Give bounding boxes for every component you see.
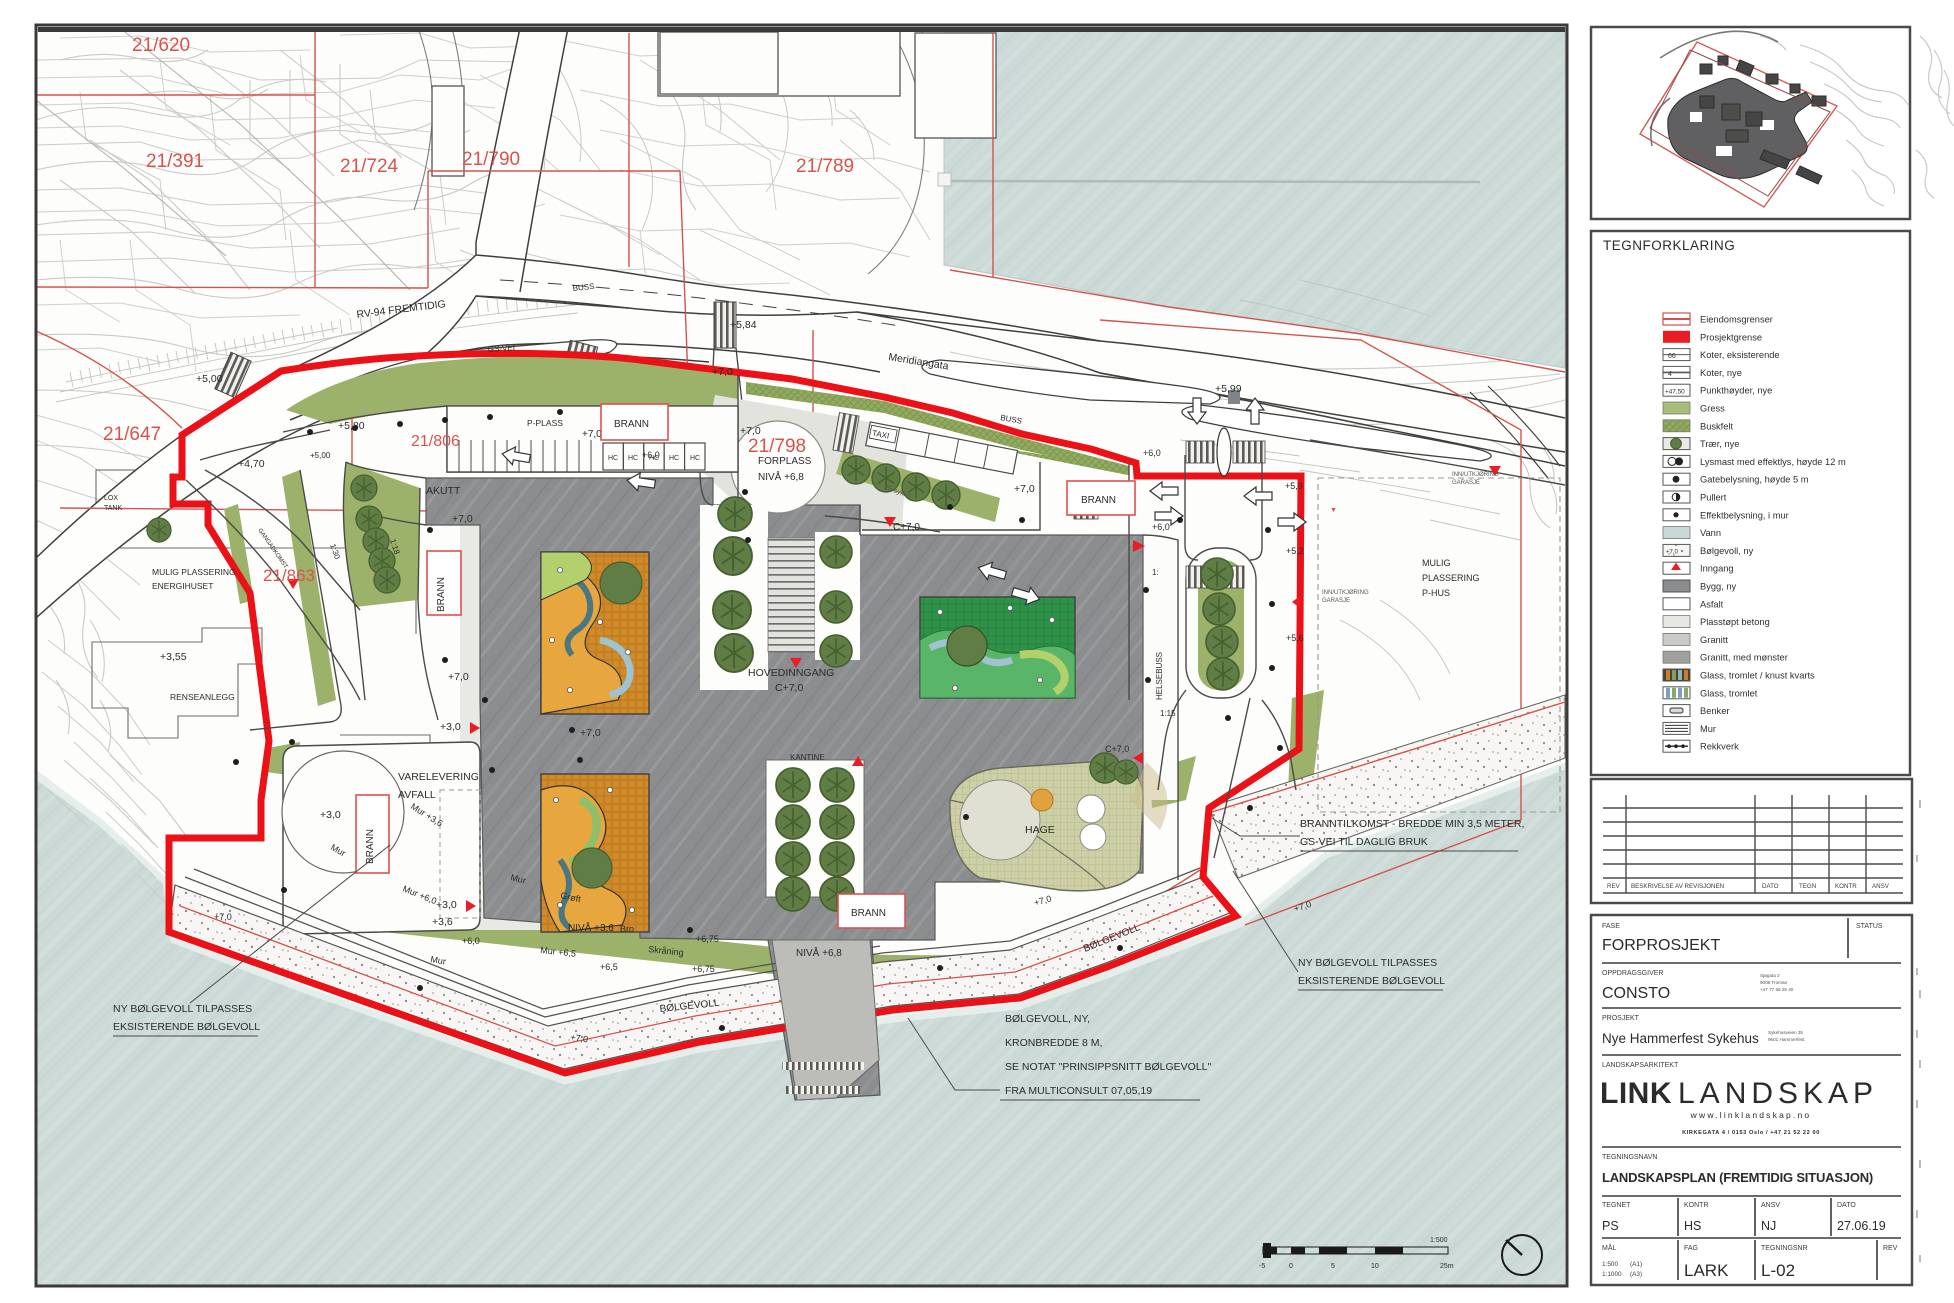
svg-text:TEGNINGSNR: TEGNINGSNR (1761, 1245, 1808, 1252)
svg-text:HS: HS (1684, 1219, 1701, 1233)
svg-text:EKSISTERENDE BØLGEVOLL: EKSISTERENDE BØLGEVOLL (1298, 975, 1445, 987)
svg-text:HC: HC (669, 455, 679, 462)
svg-text:21/724: 21/724 (340, 156, 399, 177)
svg-text:HOVEDINNGANG: HOVEDINNGANG (748, 667, 834, 679)
svg-text:GS-VEI TIL DAGLIG BRUK: GS-VEI TIL DAGLIG BRUK (1300, 836, 1428, 848)
svg-text:Sjøgata 2: Sjøgata 2 (1760, 973, 1780, 978)
svg-text:HC: HC (608, 455, 618, 462)
svg-text:AKUTT: AKUTT (426, 485, 461, 497)
svg-text:PROSJEKT: PROSJEKT (1602, 1015, 1640, 1022)
svg-text:NJ: NJ (1761, 1219, 1776, 1233)
svg-text:(A1): (A1) (1630, 1261, 1642, 1268)
svg-text:10: 10 (1371, 1263, 1379, 1270)
svg-text:ENERGIHUSET: ENERGIHUSET (152, 581, 213, 591)
svg-text:Gress: Gress (1700, 404, 1725, 414)
svg-text:Effektbelysning, i mur: Effektbelysning, i mur (1700, 510, 1789, 520)
svg-text:21/798: 21/798 (748, 436, 806, 457)
svg-text:Bølgevoll, ny: Bølgevoll, ny (1700, 546, 1754, 556)
svg-text:+7,0: +7,0 (580, 727, 601, 739)
svg-text:EKSISTERENDE BØLGEVOLL: EKSISTERENDE BØLGEVOLL (113, 1021, 260, 1033)
svg-text:21/391: 21/391 (146, 151, 204, 172)
svg-text:25m: 25m (1440, 1263, 1454, 1270)
svg-text:BESKRIVELSE AV REVISJONEN: BESKRIVELSE AV REVISJONEN (1631, 883, 1724, 890)
svg-text:KANTINE: KANTINE (790, 753, 825, 762)
svg-text:LARK: LARK (1684, 1261, 1729, 1280)
svg-text:C+7,0: C+7,0 (775, 682, 803, 694)
svg-text:Bygg, ny: Bygg, ny (1700, 582, 1737, 592)
svg-text:NIVÅ +6,8: NIVÅ +6,8 (758, 470, 804, 483)
svg-text:INN/UTKJØRING: INN/UTKJØRING (1322, 590, 1369, 596)
svg-text:P-HUS: P-HUS (1422, 588, 1450, 598)
svg-text:BØLGEVOLL, NY,: BØLGEVOLL, NY, (1005, 1013, 1090, 1025)
svg-text:+5,80: +5,80 (338, 420, 365, 432)
svg-text:HELSEBUSS: HELSEBUSS (1155, 652, 1164, 700)
svg-text:Koter, nye: Koter, nye (1700, 368, 1742, 378)
svg-text:KONTR: KONTR (1835, 883, 1857, 890)
svg-text:+47 77 66 25 40: +47 77 66 25 40 (1760, 987, 1794, 992)
svg-text:+7,0: +7,0 (1014, 483, 1035, 495)
svg-text:4: 4 (1668, 371, 1672, 378)
svg-text:HAGE: HAGE (1025, 824, 1055, 836)
svg-text:KRONBREDDE 8 M,: KRONBREDDE 8 M, (1005, 1037, 1102, 1049)
svg-text:+3,0: +3,0 (440, 721, 461, 733)
svg-text:+7,0: +7,0 (1666, 550, 1679, 556)
svg-text:P-PLASS: P-PLASS (527, 418, 563, 428)
svg-text:+47,50: +47,50 (1665, 389, 1685, 396)
svg-text:21/789: 21/789 (796, 156, 854, 177)
svg-text:DATO: DATO (1837, 1202, 1856, 1209)
svg-text:+6,75: +6,75 (692, 964, 715, 974)
svg-text:▼: ▼ (1330, 507, 1337, 514)
svg-text:+5,00: +5,00 (196, 373, 223, 385)
svg-text:Eiendomsgrenser: Eiendomsgrenser (1700, 315, 1773, 325)
svg-text:REV: REV (1607, 883, 1621, 890)
svg-text:VARELEVERING: VARELEVERING (398, 771, 479, 783)
svg-text:Glass, tromlet: Glass, tromlet (1700, 688, 1758, 698)
svg-text:MULIG PLASSERING: MULIG PLASSERING (152, 567, 236, 577)
svg-text:LANDSKAPSARKITEKT: LANDSKAPSARKITEKT (1602, 1062, 1679, 1069)
svg-text:1:500: 1:500 (1430, 1237, 1448, 1244)
svg-text:Lysmast med effektlys, høyde 1: Lysmast med effektlys, høyde 12 m (1700, 457, 1846, 467)
svg-text:INN/UTKJØRING: INN/UTKJØRING (1452, 472, 1499, 478)
svg-text:Mur: Mur (1700, 724, 1716, 734)
svg-text:Gatebelysning, høyde 5 m: Gatebelysning, høyde 5 m (1700, 475, 1809, 485)
svg-text:Pullert: Pullert (1700, 493, 1727, 503)
svg-text:21/647: 21/647 (103, 424, 161, 445)
svg-text:+5,2: +5,2 (1286, 546, 1304, 556)
svg-text:+5,00: +5,00 (310, 451, 331, 460)
svg-text:TEGNFORKLARING: TEGNFORKLARING (1603, 238, 1735, 253)
svg-text:OPPDRAGSGIVER: OPPDRAGSGIVER (1602, 970, 1663, 977)
svg-text:Inngang: Inngang (1700, 564, 1734, 574)
svg-text:Asfalt: Asfalt (1700, 599, 1724, 609)
svg-text:KONTR: KONTR (1684, 1202, 1709, 1209)
svg-text:+7,0: +7,0 (452, 513, 473, 525)
svg-text:GARASJE: GARASJE (1322, 598, 1350, 604)
svg-text:1:500: 1:500 (1602, 1261, 1618, 1268)
svg-text:Rekkverk: Rekkverk (1700, 742, 1739, 752)
svg-text:MULIG: MULIG (1422, 558, 1451, 568)
svg-text:-5: -5 (1259, 1263, 1265, 1270)
svg-text:TEGNINGSNAVN: TEGNINGSNAVN (1602, 1154, 1658, 1161)
svg-text:BRANN: BRANN (1081, 495, 1116, 506)
svg-text:TEGN: TEGN (1799, 883, 1816, 890)
svg-text:21/806: 21/806 (411, 433, 460, 450)
svg-text:FRA MULTICONSULT 07,05,19: FRA MULTICONSULT 07,05,19 (1005, 1085, 1152, 1097)
svg-text:+5,84: +5,84 (730, 319, 757, 331)
svg-text:+3,0: +3,0 (436, 899, 457, 911)
svg-text:+6,0: +6,0 (462, 936, 480, 946)
svg-text:GARASJE: GARASJE (1452, 480, 1480, 486)
svg-text:Bro: Bro (620, 924, 634, 934)
svg-text:Sykehusveien 35: Sykehusveien 35 (1768, 1030, 1803, 1035)
svg-text:+7,0: +7,0 (582, 429, 602, 440)
svg-text:AVFALL: AVFALL (398, 789, 436, 801)
svg-text:1:: 1: (1152, 568, 1159, 577)
svg-text:KIRKEGATA 4 / 0153 Oslo /: KIRKEGATA 4 / 0153 Oslo / +47 21 52 22 0… (1682, 1130, 1820, 1136)
svg-text:Plasstøpt betong: Plasstøpt betong (1700, 617, 1770, 627)
svg-text:Buskfelt: Buskfelt (1700, 421, 1733, 431)
svg-text:+6,0: +6,0 (1143, 448, 1161, 458)
svg-text:Koter, eksisterende: Koter, eksisterende (1700, 350, 1780, 360)
svg-text:FAG: FAG (1684, 1245, 1698, 1252)
svg-text:GS-VEI: GS-VEI (488, 343, 516, 354)
svg-text:BRANN: BRANN (365, 829, 376, 864)
svg-text:+3,6: +3,6 (432, 916, 453, 928)
svg-text:TANK: TANK (104, 505, 122, 512)
svg-text:+7,0: +7,0 (448, 671, 469, 683)
svg-text:C+7,0: C+7,0 (893, 522, 920, 533)
svg-text:+6,5: +6,5 (600, 962, 618, 972)
svg-text:ANSV: ANSV (1761, 1202, 1780, 1209)
svg-text:+3,0: +3,0 (320, 809, 341, 821)
svg-text:Vann: Vann (1700, 528, 1721, 538)
svg-text:ANSV: ANSV (1872, 883, 1890, 890)
svg-text:HC: HC (628, 455, 638, 462)
svg-text:C+7,0: C+7,0 (1105, 744, 1129, 754)
svg-text:LANDSKAPSPLAN (FREMTIDIG SITUA: LANDSKAPSPLAN (FREMTIDIG SITUASJON) (1602, 1170, 1873, 1185)
svg-text:REV: REV (1883, 1245, 1898, 1252)
svg-text:1:1000: 1:1000 (1602, 1271, 1622, 1278)
svg-text:FORPLASS: FORPLASS (758, 456, 812, 467)
svg-text:1:15: 1:15 (1160, 709, 1176, 718)
svg-text:BRANNTILKOMST - BREDDE MIN 3,5: BRANNTILKOMST - BREDDE MIN 3,5 METER, (1300, 818, 1524, 830)
svg-text:27.06.19: 27.06.19 (1837, 1219, 1886, 1233)
svg-text:(A3): (A3) (1630, 1271, 1642, 1278)
svg-text:TEGNET: TEGNET (1602, 1202, 1631, 1209)
svg-text:+4,70: +4,70 (238, 458, 265, 470)
svg-text:Glass, tromlet / knust kvarts: Glass, tromlet / knust kvarts (1700, 671, 1815, 681)
svg-text:RENSEANLEGG: RENSEANLEGG (170, 692, 235, 702)
svg-text:Punkthøyder, nye: Punkthøyder, nye (1700, 386, 1772, 396)
svg-text:+5,99: +5,99 (1215, 383, 1242, 395)
svg-text:9008 Tromsø: 9008 Tromsø (1760, 980, 1787, 985)
svg-text:BRANN: BRANN (614, 419, 649, 430)
svg-text:+5,9: +5,9 (1285, 481, 1303, 491)
svg-text:www.linklandskap.no: www.linklandskap.no (1690, 1110, 1812, 1120)
svg-text:5: 5 (1331, 1263, 1335, 1270)
svg-text:+6,0: +6,0 (642, 450, 660, 460)
svg-text:LINK: LINK (1600, 1077, 1672, 1110)
svg-text:NIVÅ +6,8: NIVÅ +6,8 (796, 946, 842, 959)
svg-text:L-02: L-02 (1761, 1261, 1795, 1280)
svg-text:FORPROSJEKT: FORPROSJEKT (1602, 937, 1720, 954)
svg-text:+7,0: +7,0 (740, 425, 761, 437)
svg-text:0: 0 (1289, 1263, 1293, 1270)
svg-text:66: 66 (1668, 353, 1676, 360)
svg-text:LANDSKAP: LANDSKAP (1678, 1077, 1878, 1110)
svg-text:BRANN: BRANN (851, 908, 886, 919)
svg-text:Benker: Benker (1700, 706, 1729, 716)
svg-text:21/790: 21/790 (462, 149, 520, 170)
svg-text:NY BØLGEVOLL TILPASSES: NY BØLGEVOLL TILPASSES (113, 1003, 252, 1015)
svg-text:+6,0: +6,0 (1152, 522, 1170, 532)
svg-text:Prosjektgrense: Prosjektgrense (1700, 332, 1762, 342)
svg-text:+7,0: +7,0 (712, 366, 733, 378)
svg-text:21/863: 21/863 (263, 566, 315, 585)
svg-text:+6,75: +6,75 (696, 934, 719, 944)
svg-text:9601 Hammerfest: 9601 Hammerfest (1768, 1037, 1805, 1042)
svg-text:PS: PS (1602, 1219, 1619, 1233)
svg-text:LOX: LOX (104, 495, 118, 502)
svg-text:PLASSERING: PLASSERING (1422, 573, 1480, 583)
svg-text:+7,0: +7,0 (214, 912, 232, 922)
svg-text:Granitt, med mønster: Granitt, med mønster (1700, 653, 1788, 663)
svg-text:HC: HC (690, 455, 700, 462)
svg-text:SE NOTAT "PRINSIPPSNITT BØLGEV: SE NOTAT "PRINSIPPSNITT BØLGEVOLL" (1005, 1061, 1212, 1073)
svg-text:21/620: 21/620 (132, 35, 190, 56)
svg-text:Nye Hammerfest Sykehus: Nye Hammerfest Sykehus (1602, 1031, 1759, 1046)
svg-text:CONSTO: CONSTO (1602, 985, 1670, 1002)
svg-text:NIVÅ +3,6: NIVÅ +3,6 (568, 921, 614, 934)
svg-text:NY BØLGEVOLL TILPASSES: NY BØLGEVOLL TILPASSES (1298, 957, 1437, 969)
svg-text:Trær, nye: Trær, nye (1700, 439, 1739, 449)
svg-text:STATUS: STATUS (1856, 923, 1883, 930)
svg-text:MÅL: MÅL (1602, 1243, 1617, 1252)
svg-text:FASE: FASE (1602, 923, 1620, 930)
svg-text:Granitt: Granitt (1700, 635, 1728, 645)
svg-text:+3,55: +3,55 (160, 651, 187, 663)
svg-text:+5,6: +5,6 (1286, 633, 1304, 643)
svg-text:DATO: DATO (1762, 883, 1779, 890)
svg-text:BRANN: BRANN (436, 577, 447, 612)
